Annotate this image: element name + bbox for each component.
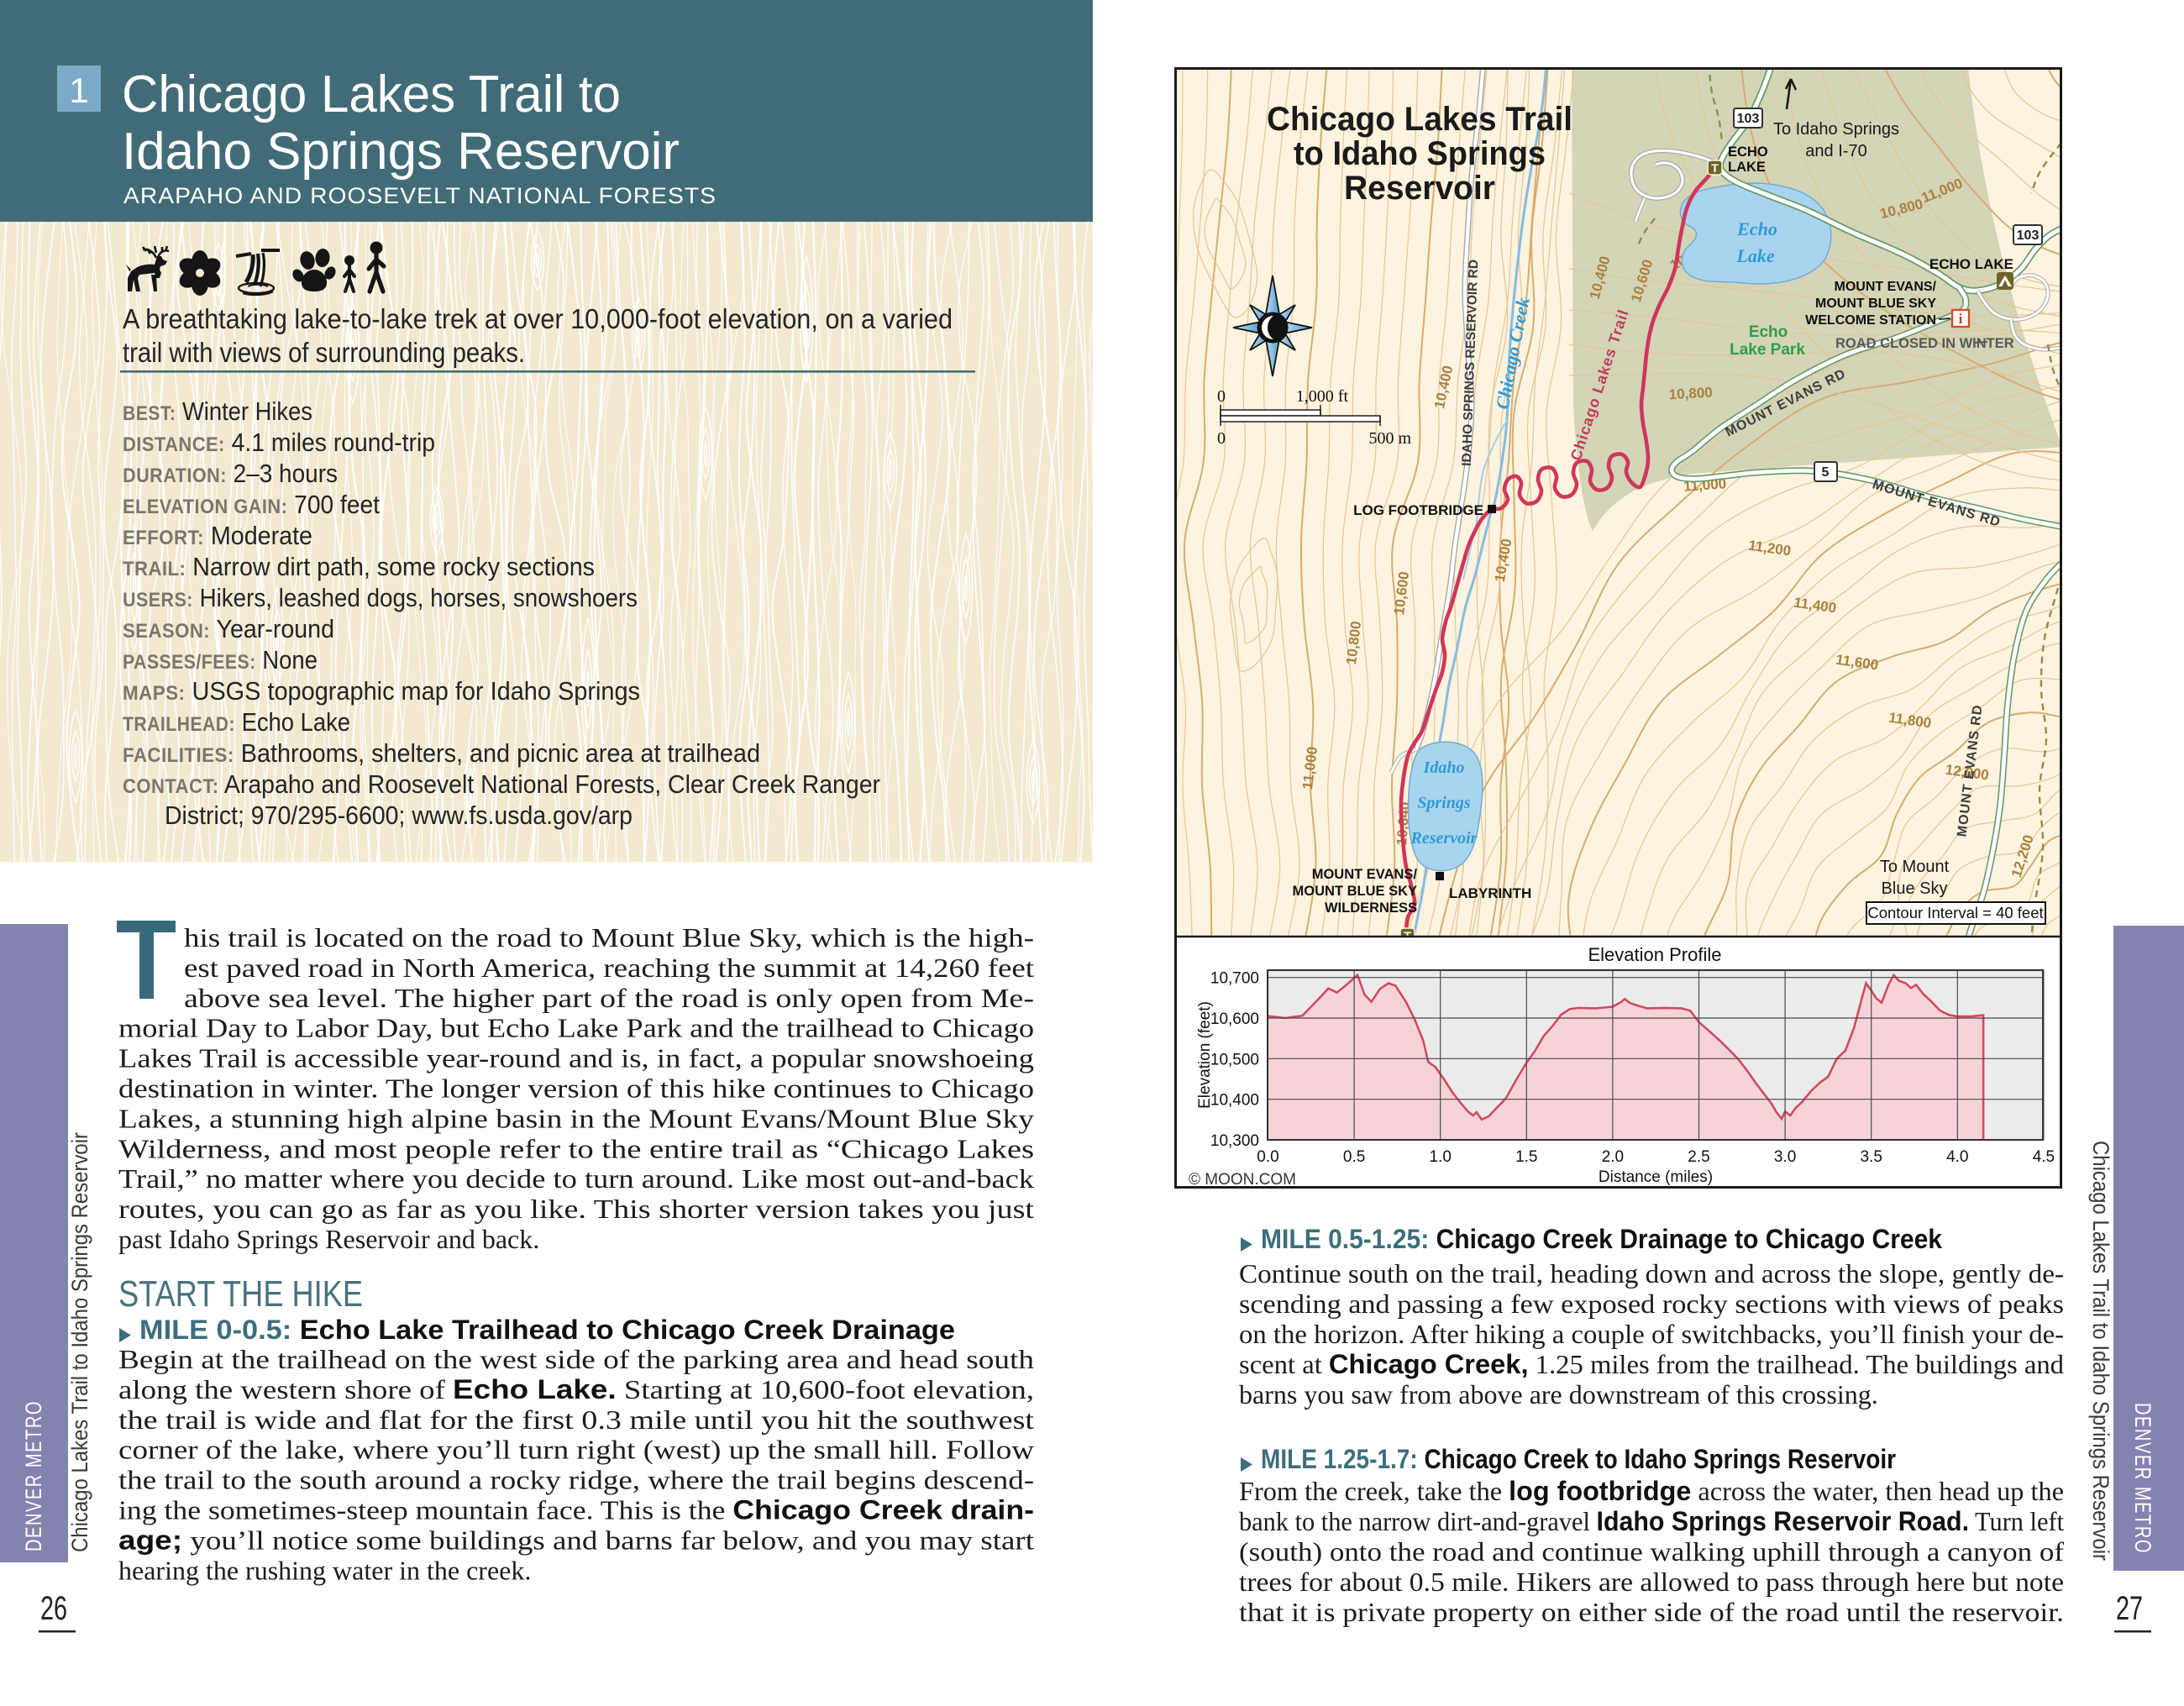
svg-text:the trail is wide and flat for: the trail is wide and flat for the first… bbox=[118, 1404, 1034, 1435]
svg-text:Blue Sky: Blue Sky bbox=[1882, 879, 1948, 898]
svg-text:3.0: 3.0 bbox=[1774, 1148, 1796, 1166]
svg-text:MILE 0.5-1.25: Chicago Creek D: MILE 0.5-1.25: Chicago Creek Drainage to… bbox=[1261, 1224, 1942, 1254]
svg-text:MILE 0-0.5: Echo Lake Trailhea: MILE 0-0.5: Echo Lake Trailhead to Chica… bbox=[139, 1315, 955, 1345]
svg-text:his trail is located on the ro: his trail is located on the road to Moun… bbox=[184, 922, 1034, 953]
svg-text:LOG FOOTBRIDGE: LOG FOOTBRIDGE bbox=[1353, 502, 1483, 518]
svg-text:MAPS: USGS topographic map for: MAPS: USGS topographic map for Idaho Spr… bbox=[123, 676, 640, 706]
svg-text:Elevation Profile: Elevation Profile bbox=[1588, 944, 1722, 965]
svg-text:DENVER METRO: DENVER METRO bbox=[2130, 1403, 2155, 1554]
svg-text:LAKE: LAKE bbox=[1728, 160, 1766, 175]
svg-text:ing the sometimes-steep mounta: ing the sometimes-steep mountain face. T… bbox=[118, 1495, 1034, 1525]
svg-text:ARAPAHO AND ROOSEVELT NATIONAL: ARAPAHO AND ROOSEVELT NATIONAL FORESTS bbox=[123, 183, 717, 208]
svg-text:i: i bbox=[1959, 311, 1963, 327]
svg-text:10,400: 10,400 bbox=[1210, 1092, 1259, 1110]
svg-text:26: 26 bbox=[40, 1590, 67, 1627]
svg-text:A breathtaking lake-to-lake tr: A breathtaking lake-to-lake trek at over… bbox=[123, 303, 953, 334]
svg-text:(south) onto the road and cont: (south) onto the road and continue walki… bbox=[1239, 1536, 2064, 1567]
svg-text:past Idaho Springs Reservoir a: past Idaho Springs Reservoir and back. bbox=[118, 1224, 539, 1254]
svg-text:age; you’ll notice some buildi: age; you’ll notice some buildings and ba… bbox=[118, 1525, 1034, 1555]
svg-text:START THE HIKE: START THE HIKE bbox=[118, 1273, 363, 1315]
svg-text:Contour Interval = 40 feet: Contour Interval = 40 feet bbox=[1867, 904, 2043, 921]
svg-text:MOUNT BLUE SKY: MOUNT BLUE SKY bbox=[1293, 884, 1418, 899]
svg-text:TRAIL: Narrow dirt path, some: TRAIL: Narrow dirt path, some rocky sect… bbox=[123, 552, 595, 581]
svg-text:Lake: Lake bbox=[1735, 245, 1774, 266]
svg-text:CONTACT: Arapaho and Roosevelt: CONTACT: Arapaho and Roosevelt National … bbox=[123, 769, 880, 799]
svg-text:0: 0 bbox=[1217, 387, 1226, 406]
svg-text:Echo: Echo bbox=[1749, 323, 1788, 341]
svg-text:on the horizon. After hiking a: on the horizon. After hiking a couple of… bbox=[1239, 1319, 2064, 1349]
svg-text:District; 970/295-6600; www.fs: District; 970/295-6600; www.fs.usda.gov/… bbox=[165, 801, 633, 830]
svg-text:Lakes Trail is accessible year: Lakes Trail is accessible year-round and… bbox=[118, 1043, 1034, 1073]
svg-text:LABYRINTH: LABYRINTH bbox=[1449, 885, 1531, 901]
svg-text:above sea level. The higher pa: above sea level. The higher part of the … bbox=[184, 983, 1034, 1013]
svg-text:0.0: 0.0 bbox=[1257, 1148, 1278, 1166]
svg-text:Chicago Lakes Trail to: Chicago Lakes Trail to bbox=[122, 66, 621, 123]
svg-text:MOUNT EVANS/: MOUNT EVANS/ bbox=[1835, 280, 1937, 294]
svg-text:scending and passing a few exp: scending and passing a few exposed rocky… bbox=[1239, 1289, 2064, 1319]
svg-text:0.5: 0.5 bbox=[1343, 1148, 1365, 1166]
svg-text:To Idaho Springs: To Idaho Springs bbox=[1773, 120, 1899, 139]
svg-text:Reservoir: Reservoir bbox=[1344, 170, 1495, 207]
svg-text:along the western shore of Ech: along the western shore of Echo Lake. St… bbox=[118, 1374, 1034, 1404]
svg-text:1,000 ft: 1,000 ft bbox=[1296, 387, 1349, 406]
svg-text:that it is private property on: that it is private property on either si… bbox=[1239, 1597, 2064, 1627]
svg-text:103: 103 bbox=[2017, 228, 2040, 243]
svg-text:0: 0 bbox=[1217, 429, 1226, 448]
svg-text:Lake Park: Lake Park bbox=[1730, 341, 1805, 359]
svg-text:To Mount: To Mount bbox=[1880, 858, 1950, 876]
svg-text:MILE 1.25-1.7: Chicago Creek t: MILE 1.25-1.7: Chicago Creek to Idaho Sp… bbox=[1261, 1444, 1896, 1474]
svg-text:10,800: 10,800 bbox=[1668, 385, 1713, 403]
svg-text:27: 27 bbox=[2116, 1590, 2143, 1627]
svg-text:Reservoir: Reservoir bbox=[1410, 829, 1478, 848]
svg-text:4.0: 4.0 bbox=[1946, 1148, 1968, 1166]
svg-text:WILDERNESS: WILDERNESS bbox=[1325, 900, 1417, 916]
svg-text:From the creek, take the log f: From the creek, take the log footbridge … bbox=[1239, 1476, 2064, 1506]
svg-text:Continue south on the trail, h: Continue south on the trail, heading dow… bbox=[1239, 1258, 2064, 1289]
svg-text:Begin at the trailhead on the: Begin at the trailhead on the west side … bbox=[118, 1344, 1034, 1374]
svg-text:ECHO LAKE: ECHO LAKE bbox=[1929, 256, 2013, 272]
svg-text:2.5: 2.5 bbox=[1688, 1148, 1709, 1166]
svg-text:Echo: Echo bbox=[1736, 218, 1777, 239]
svg-text:Wilderness, and most people re: Wilderness, and most people refer to the… bbox=[118, 1133, 1034, 1163]
svg-text:10,300: 10,300 bbox=[1210, 1132, 1259, 1150]
svg-text:the trail to the south around: the trail to the south around a rocky ri… bbox=[118, 1465, 1034, 1495]
svg-text:Idaho: Idaho bbox=[1423, 759, 1465, 777]
svg-text:1: 1 bbox=[69, 71, 88, 110]
svg-text:DENVER METRO: DENVER METRO bbox=[21, 1400, 46, 1551]
svg-text:500 m: 500 m bbox=[1368, 429, 1411, 448]
svg-text:and I-70: and I-70 bbox=[1805, 142, 1866, 160]
svg-text:trail with views of surroundin: trail with views of surrounding peaks. bbox=[123, 337, 525, 368]
svg-text:Springs: Springs bbox=[1417, 794, 1471, 812]
svg-text:ECHO: ECHO bbox=[1728, 144, 1768, 160]
svg-text:3.5: 3.5 bbox=[1860, 1148, 1882, 1166]
svg-text:© MOON.COM: © MOON.COM bbox=[1189, 1171, 1296, 1189]
svg-text:Chicago Lakes Trail: Chicago Lakes Trail bbox=[1267, 101, 1572, 138]
svg-text:T: T bbox=[1711, 161, 1719, 175]
svg-text:trees for about 0.5 mile. Hike: trees for about 0.5 mile. Hikers are all… bbox=[1239, 1567, 2064, 1597]
svg-text:5: 5 bbox=[1822, 465, 1830, 480]
svg-text:Distance (miles): Distance (miles) bbox=[1599, 1168, 1713, 1186]
svg-text:2.0: 2.0 bbox=[1602, 1148, 1624, 1166]
svg-text:destination in winter. The lon: destination in winter. The longer versio… bbox=[118, 1073, 1034, 1104]
svg-text:Trail,” no matter where you de: Trail,” no matter where you decide to tu… bbox=[118, 1163, 1034, 1194]
svg-text:10,500: 10,500 bbox=[1210, 1051, 1259, 1068]
svg-text:est paved road in North Americ: est paved road in North America, reachin… bbox=[184, 953, 1034, 983]
svg-text:Elevation (feet): Elevation (feet) bbox=[1196, 1001, 1214, 1109]
svg-text:scent at Chicago Creek, 1.25 m: scent at Chicago Creek, 1.25 miles from … bbox=[1239, 1349, 2064, 1379]
svg-text:ROAD CLOSED IN WINTER: ROAD CLOSED IN WINTER bbox=[1835, 336, 2014, 351]
svg-text:bank to the narrow dirt-and-gr: bank to the narrow dirt-and-gravel Idaho… bbox=[1239, 1506, 2064, 1536]
svg-text:1.0: 1.0 bbox=[1429, 1148, 1451, 1166]
svg-text:103: 103 bbox=[1737, 112, 1760, 126]
svg-text:Idaho Springs Reservoir: Idaho Springs Reservoir bbox=[122, 123, 680, 181]
svg-text:USERS: Hikers, leashed dogs, h: USERS: Hikers, leashed dogs, horses, sno… bbox=[123, 583, 638, 612]
svg-text:morial Day to Labor Day, but E: morial Day to Labor Day, but Echo Lake P… bbox=[118, 1013, 1034, 1043]
svg-text:1.5: 1.5 bbox=[1515, 1148, 1537, 1166]
svg-text:Chicago Lakes Trail to Idaho S: Chicago Lakes Trail to Idaho Springs Res… bbox=[2088, 1141, 2113, 1561]
svg-text:10,700: 10,700 bbox=[1210, 970, 1259, 988]
svg-text:Lakes, a stunning high alpine: Lakes, a stunning high alpine basin in t… bbox=[118, 1103, 1034, 1133]
svg-text:10,600: 10,600 bbox=[1210, 1010, 1259, 1028]
svg-text:hearing the rushing water in t: hearing the rushing water in the creek. bbox=[118, 1555, 531, 1585]
svg-text:Chicago Lakes Trail to Idaho S: Chicago Lakes Trail to Idaho Springs Res… bbox=[67, 1132, 92, 1552]
svg-text:MOUNT EVANS/: MOUNT EVANS/ bbox=[1312, 867, 1418, 882]
svg-text:to Idaho Springs: to Idaho Springs bbox=[1294, 135, 1546, 172]
svg-text:MOUNT BLUE SKY: MOUNT BLUE SKY bbox=[1815, 297, 1936, 311]
svg-text:barns you saw from above are d: barns you saw from above are downstream … bbox=[1239, 1379, 1878, 1409]
svg-text:routes, you can go as far as y: routes, you can go as far as you like. T… bbox=[118, 1194, 1034, 1224]
svg-text:WELCOME STATION: WELCOME STATION bbox=[1805, 313, 1936, 328]
svg-text:4.5: 4.5 bbox=[2033, 1148, 2055, 1166]
svg-text:corner of the lake, where you’: corner of the lake, where you’ll turn ri… bbox=[118, 1435, 1034, 1465]
